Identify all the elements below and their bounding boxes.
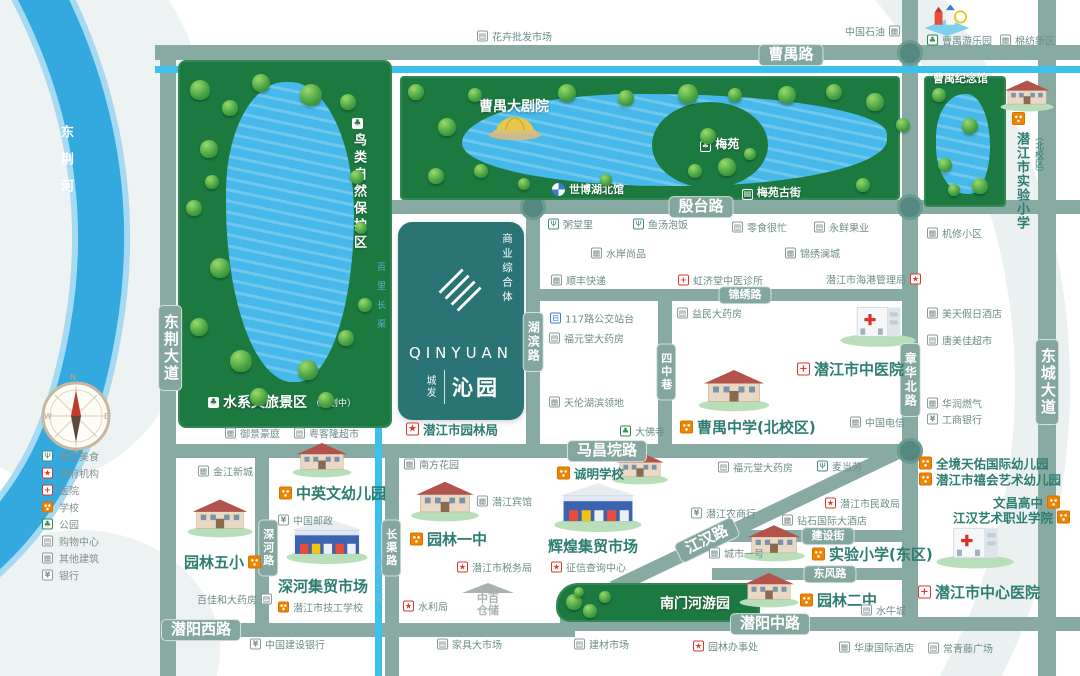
legend-item-dining: Ψ餐饮美食 [42, 449, 99, 464]
shopping-icon: ▤ [732, 222, 743, 233]
poi-label: 水利局 [418, 599, 448, 614]
road-label-qianyang-mid-rd: 潜阳中路 [730, 613, 810, 635]
legend-item-school: 学校 [42, 500, 79, 515]
poi-label: 潜江农商行 [706, 506, 756, 521]
building-icon: ▦ [850, 417, 861, 428]
poi-huakang-hotel: ▦华康国际酒店 [839, 640, 914, 655]
poi-shuili-bureau: ★水利局 [403, 599, 448, 614]
school-icon [680, 421, 693, 434]
poi-tangmeijia: ▤唐美佳超市 [927, 333, 992, 348]
road-label-dongfeng-rd: 东风路 [804, 565, 857, 583]
road-label-caoyu-rd: 曹禺路 [758, 44, 823, 66]
poi-label: 锦绣澜城 [800, 246, 840, 261]
tree-decor [678, 84, 698, 104]
tree-decor [428, 168, 444, 184]
poi-label: 曹禺中学(北校区) [697, 417, 816, 438]
poi-label: 潜江市技工学校 [293, 600, 363, 615]
poi-label: 钻石国际大酒店 [797, 513, 867, 528]
poi-shenhe-market: 深河集贸市场 [278, 576, 368, 597]
poi-zhongguo-shiyou: 中国石油▦ [845, 24, 900, 39]
poi-baijiahe-pharmacy: 百佳和大药房▤ [197, 592, 272, 607]
poi-caoyu-amusement: ♣曹禺游乐园 [927, 33, 992, 48]
school-icon [248, 556, 261, 569]
tree-decor [932, 88, 946, 102]
poi-tianlun: ▦天伦湖滨领地 [549, 395, 624, 410]
poi-fuyuantang-s: ▤福元堂大药房 [718, 460, 793, 475]
poi-zhongyi-hospital: +潜江市中医院 [797, 359, 904, 380]
poi-zhongying-kindergarten: 中英文幼儿园 [279, 483, 386, 504]
building-icon: ▦ [551, 275, 562, 286]
poi-caoyu-middle-school: 曹禺中学(北校区) [680, 417, 816, 438]
shopping-icon: ▤ [927, 335, 938, 346]
poi-mianfang-xinqu: ▦棉纺新区 [1000, 33, 1055, 48]
building-icon: ▦ [785, 248, 796, 259]
school-icon [279, 487, 292, 500]
poi-changqingteng: ▤常青藤广场 [928, 641, 993, 656]
legend-label: 餐饮美食 [59, 449, 99, 464]
poi-shiyan-school-east: 实验小学(东区) [812, 544, 933, 565]
poi-chengming-school: 诚明学校 [557, 464, 624, 483]
poi-fuyuantang-n: ▤福元堂大药房 [549, 331, 624, 346]
poi-label: 117路公交站台 [565, 311, 634, 326]
building-icon: ▦ [709, 548, 720, 559]
expo-hall-label: 世博湖北馆 [552, 181, 624, 197]
poi-label: 天伦湖滨领地 [564, 395, 624, 410]
poi-label: 园林办事处 [708, 639, 758, 654]
poi-jixiu-xiaoqu: ▦机修小区 [927, 226, 982, 241]
poi-label: 华康国际酒店 [854, 640, 914, 655]
poi-label: 棉纺新区 [1015, 33, 1055, 48]
project-developer: 城发 [422, 375, 437, 399]
poi-label: 城市一号 [724, 546, 764, 561]
tree-decor [962, 118, 978, 134]
park-icon: ♣ [620, 426, 631, 437]
poi-yuanlin-5: 园林五小 [184, 552, 261, 573]
meiyuan-street-label: ▤ 梅苑古街 [742, 184, 801, 200]
project-category: 商业综合体 [500, 233, 515, 306]
hospital-icon: + [918, 586, 931, 599]
building-huihuang-market [552, 474, 644, 532]
tree-decor [186, 200, 202, 216]
hospital-icon: + [678, 275, 689, 286]
building-icon: ▦ [782, 515, 793, 526]
poi-label: 潜江市民政局 [840, 496, 900, 511]
poi-yongxian-guoye: ▤永鲜果业 [814, 220, 869, 235]
map-canvas: 东荆河 曹禺大剧院 曹禺纪念馆 ♣ 梅苑 世博湖北馆 ▤ 梅苑古街 [0, 0, 1080, 676]
qinyuan-logo-icon [438, 268, 484, 314]
poi-minzheng-bureau: ★潜江市民政局 [825, 496, 900, 511]
building-zhongyi-hospital [838, 296, 918, 348]
shopping-icon: ▤ [477, 31, 488, 42]
poi-label: 中国石油 [845, 24, 885, 39]
poi-label: 园林五小 [184, 552, 244, 573]
poi-qj-rural-bank: ¥潜江农商行 [691, 506, 756, 521]
poi-label: 鱼汤泡饭 [648, 217, 688, 232]
school-icon [557, 467, 570, 480]
poi-label: 麦当劳 [832, 459, 862, 474]
legend-label: 公园 [59, 517, 79, 532]
tree-decor [700, 128, 716, 144]
dining-icon: Ψ [633, 219, 644, 230]
legend-item-gov: ★政府机构 [42, 466, 99, 481]
shopping-icon: ▤ [42, 536, 53, 547]
school-icon [410, 533, 423, 546]
poi-yuekelong: ▤粤客隆超市 [294, 426, 359, 441]
building-caoyu-theater [480, 104, 550, 142]
school-icon [919, 457, 932, 470]
poi-hongjitang: +虹济堂中医诊所 [678, 273, 763, 288]
shopping-icon: ▤ [861, 605, 872, 616]
road-label-hubin-rd: 湖滨路 [523, 312, 544, 372]
school-icon [42, 502, 53, 513]
poi-label: 顺丰快递 [566, 273, 606, 288]
tree-decor [340, 94, 356, 110]
channel-label-upper: 百里长渠 [374, 262, 387, 338]
tree-decor [438, 118, 456, 136]
poi-zuanshi-hotel: ▦钻石国际大酒店 [782, 513, 867, 528]
school-icon [812, 548, 825, 561]
gov-icon: ★ [910, 274, 921, 285]
shopping-icon: ▤ [549, 333, 560, 344]
poi-nanfang-huayuan: ▦南方花园 [404, 457, 459, 472]
ne-school-icon [1012, 112, 1025, 125]
tree-decor [948, 184, 960, 196]
building-icon: ▦ [839, 642, 850, 653]
poi-label: 建材市场 [589, 637, 629, 652]
poi-label: 潜江市中医院 [814, 359, 904, 380]
road-label-jinxiu-rd: 锦绣路 [719, 286, 772, 304]
tree-decor [318, 392, 334, 408]
roundabout-caoyu-zhanghua [897, 40, 923, 66]
building-icon: ▦ [225, 428, 236, 439]
poi-huahui-market: ▤花卉批发市场 [477, 29, 552, 44]
tree-decor [574, 587, 584, 597]
hospital-icon: + [42, 485, 53, 496]
meiyuan-street-icon: ▤ [742, 189, 753, 200]
building-icon: ▦ [404, 459, 415, 470]
poi-jigong-school: 潜江市技工学校 [278, 600, 363, 615]
divider [444, 370, 445, 404]
bus-icon: ⊟ [550, 313, 561, 324]
bank-icon: ¥ [691, 508, 702, 519]
building-icon: ▦ [927, 398, 938, 409]
hospital-icon: + [797, 363, 810, 376]
poi-yuanlin-bureau: ★潜江市园林局 [406, 420, 498, 439]
shopping-icon: ▤ [814, 222, 825, 233]
ne-school-sub-label: （北校区） [1032, 132, 1045, 230]
tree-decor [728, 88, 742, 102]
poi-label: 中国电信 [865, 415, 905, 430]
building-icon: ▦ [477, 496, 488, 507]
bank-icon: ¥ [42, 570, 53, 581]
bird-reserve-icon: ♣ [352, 118, 363, 129]
building-zhongying-kindergarten [288, 438, 356, 478]
poi-china-post: ¥中国邮政 [278, 513, 333, 528]
poi-yutang-paofan: Ψ鱼汤泡饭 [633, 217, 688, 232]
shopping-icon: ▤ [718, 462, 729, 473]
poi-zhengxin-center: ★征信查询中心 [551, 560, 626, 575]
shopping-icon: ▤ [574, 639, 585, 650]
poi-xihui-kindergarten: 潜江市禧会艺术幼儿园 [919, 470, 1061, 489]
poi-jinjiang-xincheng: ▦金江新城 [198, 464, 253, 479]
legend-item-park: ♣公园 [42, 517, 79, 532]
tree-decor [300, 84, 322, 106]
road-label-dongjing-ave: 东荆大道 [158, 305, 182, 391]
tree-decor [583, 604, 597, 618]
svg-text:W: W [44, 412, 52, 421]
building-amusement-park [912, 0, 982, 36]
poi-yuanlin-office: ★园林办事处 [693, 639, 758, 654]
poi-label: 深河集贸市场 [278, 576, 368, 597]
building-icon: ▦ [198, 466, 209, 477]
poi-label: 潜江市税务局 [472, 560, 532, 575]
river-label: 东荆河 [56, 125, 75, 206]
poi-label: 南方花园 [419, 457, 459, 472]
road-label-jianshe-st: 建设街 [802, 527, 855, 545]
legend-item-building: ▦其他建筑 [42, 551, 99, 566]
tree-decor [250, 388, 268, 406]
tree-decor [350, 170, 364, 184]
road-label-zhanghua-north-rd: 章华北路 [900, 343, 921, 417]
poi-zhongxin-hospital: +潜江市中心医院 [918, 582, 1040, 603]
poi-label: 实验小学(东区) [829, 544, 933, 565]
tree-decor [778, 86, 796, 104]
poi-label: 中国邮政 [293, 513, 333, 528]
gov-icon: ★ [457, 562, 468, 573]
poi-zhoutangli: Ψ粥堂里 [548, 217, 593, 232]
poi-label: 粥堂里 [563, 217, 593, 232]
tree-decor [408, 84, 424, 100]
building-icon: ▦ [927, 228, 938, 239]
tree-decor [200, 140, 218, 158]
poi-mcdonalds: Ψ麦当劳 [817, 459, 862, 474]
poi-label: 大佛寺 [635, 424, 665, 439]
poi-label: 潜江市中心医院 [935, 582, 1040, 603]
tree-decor [599, 591, 611, 603]
tree-decor [896, 118, 910, 132]
school-icon [800, 594, 813, 607]
poi-chengshi-yihao: ▦城市一号 [709, 546, 764, 561]
bank-icon: ¥ [927, 414, 938, 425]
poi-label: 粤客隆超市 [309, 426, 359, 441]
poi-label: 潜江市园林局 [423, 420, 498, 439]
poi-huihuang-market: 辉煌集贸市场 [548, 536, 638, 557]
tree-decor [205, 175, 219, 189]
qinyuan-project-block: 商业综合体 QINYUAN 城发 沁园 [398, 222, 524, 420]
poi-label: 福元堂大药房 [733, 460, 793, 475]
building-icon: ▦ [927, 308, 938, 319]
poi-label: 永鲜果业 [829, 220, 869, 235]
tree-decor [558, 84, 576, 102]
legend-label: 医院 [59, 483, 79, 498]
building-yuanlin-1 [406, 476, 484, 522]
tree-decor [252, 74, 270, 92]
poi-meitian-hotel: ▦美天假日酒店 [927, 306, 1002, 321]
shopping-icon: ▤ [294, 428, 305, 439]
poi-label: 美天假日酒店 [942, 306, 1002, 321]
school-icon [1057, 511, 1070, 524]
poi-label: 唐美佳超市 [942, 333, 992, 348]
park-icon: ♣ [42, 519, 53, 530]
gov-icon: ★ [825, 498, 836, 509]
compass-rose: N W E S [38, 370, 114, 456]
gov-icon: ★ [42, 468, 53, 479]
poi-label: 常青藤广场 [943, 641, 993, 656]
tree-decor [190, 80, 210, 100]
tree-decor [718, 158, 736, 176]
poi-label: 潜江市海港管理局 [826, 272, 906, 287]
channel-label-lower: 百里长渠 [374, 558, 385, 606]
tree-decor [938, 158, 952, 172]
legend-item-shopping: ▤购物中心 [42, 534, 99, 549]
poi-label: 虹济堂中医诊所 [693, 273, 763, 288]
poi-label: 工商银行 [942, 412, 982, 427]
dining-icon: Ψ [548, 219, 559, 230]
water-scenic-icon: ♣ [208, 397, 219, 408]
tree-decor [826, 84, 842, 100]
shopping-icon: ▤ [928, 643, 939, 654]
gov-icon: ★ [551, 562, 562, 573]
poi-jianghan-college: 江汉艺术职业学院 [953, 508, 1070, 527]
poi-label: 百佳和大药房 [197, 592, 257, 607]
lake-west [226, 82, 354, 382]
school-icon [919, 473, 932, 486]
tree-decor [866, 93, 884, 111]
tree-decor [972, 178, 988, 194]
poi-label: 征信查询中心 [566, 560, 626, 575]
tree-decor [338, 330, 354, 346]
legend-item-hospital: +医院 [42, 483, 79, 498]
road-label-yintai-rd: 殷台路 [668, 196, 733, 218]
tree-decor [856, 178, 870, 192]
tree-decor [210, 258, 230, 278]
nanmenhe-label: 南门河游园 [660, 593, 730, 613]
building-icon: ▦ [549, 397, 560, 408]
poi-label: 辉煌集贸市场 [548, 536, 638, 557]
poi-label: 零食很忙 [747, 220, 787, 235]
poi-jiancai-market: ▤建材市场 [574, 637, 629, 652]
poi-yimin-pharmacy: ▤益民大药房 [677, 306, 742, 321]
poi-label: 福元堂大药房 [564, 331, 624, 346]
poi-label: 曹禺游乐园 [942, 33, 992, 48]
dining-icon: Ψ [42, 451, 53, 462]
ne-school-label: 潜江市实验小学 [1012, 132, 1031, 230]
building-icon: ▦ [591, 248, 602, 259]
gov-icon: ★ [406, 423, 419, 436]
tree-decor [355, 222, 367, 234]
road-label-shenhe-rd: 深河路 [258, 520, 278, 577]
road-label-qianyang-west-rd: 潜阳西路 [161, 619, 241, 641]
poi-shuiniucheng: ▤水牛城 [861, 603, 906, 618]
legend-label: 购物中心 [59, 534, 99, 549]
road-machangyuan [160, 444, 916, 458]
poi-label: 御景豪庭 [240, 426, 280, 441]
poi-label: 花卉批发市场 [492, 29, 552, 44]
poi-yujing-haoting: ▦御景豪庭 [225, 426, 280, 441]
tree-decor [298, 360, 318, 380]
road-label-dongcheng-ave: 东城大道 [1035, 339, 1059, 425]
poi-lingshi-henmang: ▤零食很忙 [732, 220, 787, 235]
road-label-machangyuan-rd: 马昌垸路 [567, 440, 647, 462]
shopping-icon: ▤ [437, 639, 448, 650]
bank-icon: ¥ [278, 515, 289, 526]
poi-jiaju-market: ▤家具大市场 [437, 637, 502, 652]
gov-icon: ★ [693, 641, 704, 652]
legend-item-bank: ¥银行 [42, 568, 79, 583]
tree-decor [618, 90, 634, 106]
poi-shuiwu-bureau: ★潜江市税务局 [457, 560, 532, 575]
tree-decor [190, 318, 208, 336]
poi-label: 园林一中 [427, 529, 487, 550]
poi-label: 潜江市禧会艺术幼儿园 [936, 470, 1061, 489]
building-icon: ▦ [1000, 35, 1011, 46]
poi-haigang-bureau: 潜江市海港管理局★ [826, 272, 921, 287]
poi-qianjiang-hotel: ▦潜江宾馆 [477, 494, 532, 509]
poi-huarun-gas: ▦华润燃气 [927, 396, 982, 411]
poi-dafosi: ♣大佛寺 [620, 424, 665, 439]
legend-label: 政府机构 [59, 466, 99, 481]
shopping-icon: ▤ [261, 594, 272, 605]
poi-label: 水牛城 [876, 603, 906, 618]
poi-label: 诚明学校 [574, 464, 624, 483]
school-icon [278, 602, 289, 613]
building-icon: ▦ [889, 26, 900, 37]
tree-decor [688, 164, 702, 178]
project-name-cn: 沁园 [452, 372, 500, 402]
building-ne-school [996, 76, 1058, 112]
poi-china-telecom: ▦中国电信 [850, 415, 905, 430]
tree-decor [358, 298, 372, 312]
park-icon: ♣ [927, 35, 938, 46]
poi-shunfeng: ▦顺丰快递 [551, 273, 606, 288]
project-name-en: QINYUAN [398, 344, 524, 362]
gov-icon: ★ [403, 601, 414, 612]
poi-label: 家具大市场 [452, 637, 502, 652]
tree-decor [468, 88, 482, 102]
tree-decor [230, 350, 252, 372]
tree-decor [474, 164, 488, 178]
poi-label: 机修小区 [942, 226, 982, 241]
poi-label: 中国建设银行 [265, 637, 325, 652]
building-yuanlin-5 [182, 494, 258, 538]
zhongbai-watermark: 中百仓储 [462, 583, 514, 616]
building-yuanlin-2 [734, 568, 804, 608]
compass-n: N [70, 373, 76, 382]
poi-label: 中英文幼儿园 [296, 483, 386, 504]
poi-shuian-shangpin: ▦水岸尚品 [591, 246, 646, 261]
building-icon: ▦ [42, 553, 53, 564]
poi-bus-117: ⊟117路公交站台 [550, 311, 634, 326]
poi-ccb-bank: ¥中国建设银行 [250, 637, 325, 652]
dining-icon: Ψ [817, 461, 828, 472]
shopping-icon: ▤ [677, 308, 688, 319]
road-label-sizhong-lane: 四中巷 [656, 344, 676, 401]
ne-school-block: 潜江市实验小学 （北校区） [1012, 110, 1045, 230]
poi-icbc: ¥工商银行 [927, 412, 982, 427]
bank-icon: ¥ [250, 639, 261, 650]
roundabout-yintai-zhanghua [897, 194, 923, 220]
tree-decor [744, 148, 756, 160]
expo-icon [552, 183, 565, 196]
tree-decor [518, 178, 530, 190]
poi-label: 华润燃气 [942, 396, 982, 411]
poi-jinxiu-lancheng: ▦锦绣澜城 [785, 246, 840, 261]
poi-label: 江汉艺术职业学院 [953, 508, 1053, 527]
poi-yuanlin-1: 园林一中 [410, 529, 487, 550]
caoyu-memorial-label: 曹禺纪念馆 [933, 70, 988, 86]
svg-text:E: E [104, 412, 109, 421]
poi-label: 益民大药房 [692, 306, 742, 321]
